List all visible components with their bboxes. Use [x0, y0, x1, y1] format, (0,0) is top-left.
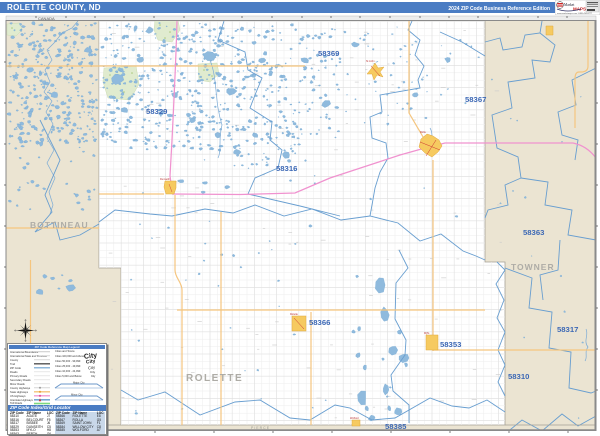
svg-text:Mylo: Mylo: [424, 332, 430, 335]
svg-text:Dunseith: Dunseith: [160, 178, 170, 181]
svg-text:Rolla: Rolla: [420, 131, 426, 134]
svg-text:St John: St John: [366, 60, 375, 63]
svg-text:Rolette: Rolette: [290, 313, 299, 316]
svg-text:Minor City: Minor City: [71, 392, 83, 396]
svg-text:Major City: Major City: [73, 380, 85, 384]
svg-text:Wolford: Wolford: [350, 417, 359, 420]
